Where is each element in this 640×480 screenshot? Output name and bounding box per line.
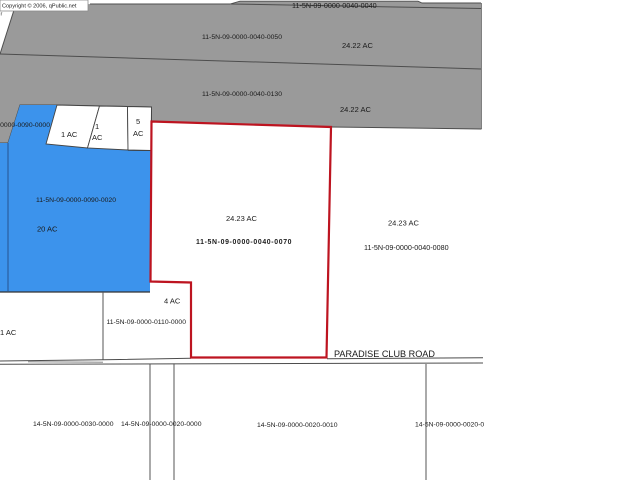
svg-text:11-5N-09-0000-0040-0040: 11-5N-09-0000-0040-0040 [292, 1, 377, 10]
svg-text:r: r [1, 12, 3, 18]
svg-text:24.22 AC: 24.22 AC [340, 105, 371, 114]
svg-text:11-5N-09-0000-0090-0000: 11-5N-09-0000-0090-0000 [0, 122, 50, 129]
svg-text:5: 5 [136, 117, 140, 126]
svg-text:24.23 AC: 24.23 AC [388, 219, 419, 228]
svg-text:11-5N-09-0000-0090-0020: 11-5N-09-0000-0090-0020 [36, 197, 116, 204]
svg-text:11-5N-09-0000-0040-0080: 11-5N-09-0000-0040-0080 [364, 243, 449, 252]
svg-text:14-5N-09-0000-0030-0000: 14-5N-09-0000-0030-0000 [33, 421, 114, 428]
svg-text:24.22 AC: 24.22 AC [342, 41, 373, 50]
svg-text:20 AC: 20 AC [37, 225, 58, 234]
svg-text:11-5N-09-0000-0110-0000: 11-5N-09-0000-0110-0000 [107, 319, 187, 326]
svg-text:AC: AC [92, 133, 103, 142]
svg-text:PARADISE CLUB ROAD: PARADISE CLUB ROAD [334, 349, 435, 359]
svg-text:11-5N-09-0000-0040-0130: 11-5N-09-0000-0040-0130 [202, 91, 282, 98]
svg-text:1 AC: 1 AC [61, 130, 78, 139]
svg-text:11-5N-09-0000-0040-0070: 11-5N-09-0000-0040-0070 [196, 239, 292, 246]
svg-text:14-5N-09-0000-0020-0010: 14-5N-09-0000-0020-0010 [257, 422, 338, 429]
svg-text:24.23 AC: 24.23 AC [226, 214, 257, 223]
svg-text:Copyright © 2006, qPublic.net: Copyright © 2006, qPublic.net [2, 3, 77, 10]
svg-text:14-5N-09-0000-0020-0: 14-5N-09-0000-0020-0 [415, 422, 484, 429]
svg-text:AC: AC [133, 129, 144, 138]
svg-text:1: 1 [95, 122, 99, 131]
svg-text:1 AC: 1 AC [0, 328, 17, 337]
svg-text:4 AC: 4 AC [164, 297, 181, 306]
svg-text:14-5N-09-0000-0020-0000: 14-5N-09-0000-0020-0000 [121, 421, 202, 428]
svg-text:11-5N-09-0000-0040-0050: 11-5N-09-0000-0040-0050 [202, 34, 282, 41]
